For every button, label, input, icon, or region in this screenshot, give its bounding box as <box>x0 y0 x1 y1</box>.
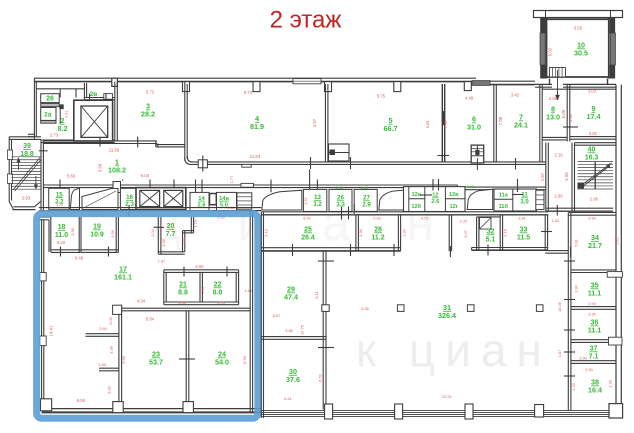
svg-text:4.23: 4.23 <box>571 383 576 391</box>
svg-text:8.67: 8.67 <box>273 313 281 318</box>
svg-text:1.77: 1.77 <box>229 176 234 184</box>
svg-text:3.90: 3.90 <box>588 301 596 306</box>
svg-text:2 этаж: 2 этаж <box>270 7 342 34</box>
svg-text:2.9: 2.9 <box>362 202 371 209</box>
svg-text:8.2: 8.2 <box>58 126 68 133</box>
svg-text:3.80: 3.80 <box>106 385 111 393</box>
svg-text:5.88: 5.88 <box>285 328 293 333</box>
svg-text:3.90: 3.90 <box>588 216 596 221</box>
svg-text:11.83: 11.83 <box>250 154 261 159</box>
svg-text:10.9: 10.9 <box>90 231 104 238</box>
svg-text:6.89: 6.89 <box>425 121 430 129</box>
svg-text:3.20: 3.20 <box>57 240 66 245</box>
svg-text:2.02: 2.02 <box>201 286 205 293</box>
svg-text:2.93: 2.93 <box>22 195 31 200</box>
svg-text:3.90: 3.90 <box>588 312 596 317</box>
svg-text:1.66: 1.66 <box>98 362 106 367</box>
svg-text:5.66: 5.66 <box>67 173 76 178</box>
svg-text:3.81: 3.81 <box>518 215 526 220</box>
svg-text:3.81: 3.81 <box>589 131 598 136</box>
svg-text:11.5: 11.5 <box>517 234 530 241</box>
svg-text:3.58: 3.58 <box>70 228 75 236</box>
svg-text:53.7: 53.7 <box>149 358 163 367</box>
svg-text:2.80: 2.80 <box>590 197 599 202</box>
svg-text:3.42: 3.42 <box>511 93 520 98</box>
svg-text:12г: 12г <box>450 204 459 210</box>
svg-text:5.81: 5.81 <box>574 239 579 247</box>
svg-text:3.03: 3.03 <box>178 300 186 305</box>
svg-text:2.6: 2.6 <box>431 199 440 205</box>
svg-text:81.9: 81.9 <box>250 122 264 131</box>
svg-text:3.90: 3.90 <box>585 367 593 372</box>
svg-text:1.52: 1.52 <box>304 197 308 204</box>
svg-text:3.2: 3.2 <box>313 201 322 208</box>
svg-text:4.48: 4.48 <box>465 96 474 101</box>
svg-text:3.90: 3.90 <box>579 356 587 361</box>
svg-text:2.90: 2.90 <box>574 284 579 292</box>
svg-text:1.70: 1.70 <box>56 203 63 207</box>
svg-text:3.3: 3.3 <box>336 202 345 209</box>
svg-text:4.34: 4.34 <box>137 299 146 304</box>
svg-text:9.58: 9.58 <box>121 356 126 364</box>
svg-text:5.55: 5.55 <box>564 172 569 181</box>
svg-text:4.03: 4.03 <box>466 184 475 189</box>
svg-text:21.7: 21.7 <box>588 241 602 250</box>
svg-text:1.82: 1.82 <box>181 237 186 245</box>
svg-text:11.0: 11.0 <box>55 232 68 239</box>
svg-text:5.42: 5.42 <box>615 237 620 245</box>
svg-text:13.0: 13.0 <box>546 113 560 122</box>
svg-text:5.36: 5.36 <box>361 306 369 311</box>
svg-text:11а: 11а <box>499 192 509 198</box>
svg-text:18.09: 18.09 <box>557 302 562 312</box>
svg-text:8.11: 8.11 <box>314 291 319 298</box>
svg-text:4.92: 4.92 <box>568 113 573 122</box>
svg-text:108.2: 108.2 <box>108 166 126 175</box>
svg-text:3.04: 3.04 <box>150 228 155 236</box>
svg-text:7.1: 7.1 <box>589 353 599 360</box>
svg-text:5.02: 5.02 <box>548 47 553 56</box>
svg-text:26: 26 <box>46 96 54 103</box>
svg-text:3.38: 3.38 <box>109 346 114 354</box>
svg-text:8.0: 8.0 <box>213 289 223 296</box>
svg-text:12б: 12б <box>411 203 421 210</box>
svg-text:7.00: 7.00 <box>443 120 448 128</box>
svg-text:1.43: 1.43 <box>361 185 370 190</box>
svg-text:1.62: 1.62 <box>552 218 560 223</box>
svg-text:2.19: 2.19 <box>554 153 563 158</box>
svg-text:3.58: 3.58 <box>110 230 115 238</box>
svg-text:5.61: 5.61 <box>284 396 292 401</box>
svg-text:5.72: 5.72 <box>146 90 155 95</box>
svg-text:3.98: 3.98 <box>98 163 103 172</box>
svg-text:37.6: 37.6 <box>286 375 300 384</box>
svg-text:20.51: 20.51 <box>442 394 452 399</box>
svg-text:5.1: 5.1 <box>486 236 496 243</box>
svg-text:2.73: 2.73 <box>50 133 59 138</box>
svg-text:28.2: 28.2 <box>141 110 155 119</box>
svg-text:31.0: 31.0 <box>467 123 481 132</box>
svg-text:8.42: 8.42 <box>303 215 311 220</box>
svg-text:3.38: 3.38 <box>358 229 363 237</box>
svg-text:8.58: 8.58 <box>242 356 247 364</box>
svg-text:2.60: 2.60 <box>99 326 107 331</box>
svg-text:2.00: 2.00 <box>108 316 113 324</box>
svg-text:9.75: 9.75 <box>377 94 386 99</box>
svg-text:2.20: 2.20 <box>460 218 468 223</box>
svg-text:14.75: 14.75 <box>300 325 305 335</box>
svg-text:5.06: 5.06 <box>561 109 566 118</box>
svg-text:2.93: 2.93 <box>373 215 381 220</box>
svg-text:5.84: 5.84 <box>146 317 155 322</box>
svg-text:16.3: 16.3 <box>585 154 599 161</box>
svg-text:6.48: 6.48 <box>75 256 84 261</box>
svg-text:11.58: 11.58 <box>109 148 120 153</box>
svg-text:17.4: 17.4 <box>587 112 601 121</box>
svg-text:11б: 11б <box>499 203 509 210</box>
svg-text:3.19: 3.19 <box>503 229 508 237</box>
svg-text:1.38: 1.38 <box>608 380 613 388</box>
svg-text:12в: 12в <box>449 192 459 198</box>
svg-text:6.04: 6.04 <box>141 173 150 178</box>
svg-text:к циан: к циан <box>356 324 552 376</box>
svg-text:4.97: 4.97 <box>312 118 317 127</box>
svg-text:2.88: 2.88 <box>549 96 558 101</box>
svg-text:4.91: 4.91 <box>64 111 69 119</box>
svg-text:2в: 2в <box>90 91 98 98</box>
svg-text:5.50: 5.50 <box>574 26 583 31</box>
svg-text:161.1: 161.1 <box>114 273 132 282</box>
svg-text:1.87: 1.87 <box>557 350 562 358</box>
svg-text:30.5: 30.5 <box>574 49 588 58</box>
svg-text:4.25: 4.25 <box>421 216 429 221</box>
svg-text:11.1: 11.1 <box>588 289 602 298</box>
svg-text:3.07: 3.07 <box>463 230 468 238</box>
svg-text:7.7: 7.7 <box>166 231 176 238</box>
svg-text:47.4: 47.4 <box>284 293 298 302</box>
svg-text:26.4: 26.4 <box>301 234 315 241</box>
svg-text:24.1: 24.1 <box>514 121 528 130</box>
svg-text:2а: 2а <box>44 112 52 119</box>
svg-text:1.43: 1.43 <box>336 185 345 190</box>
svg-text:18.8: 18.8 <box>20 151 34 158</box>
svg-text:326.4: 326.4 <box>438 311 456 320</box>
svg-text:7.08: 7.08 <box>498 116 503 125</box>
svg-text:2.06: 2.06 <box>554 194 563 199</box>
svg-text:3.58: 3.58 <box>161 239 166 247</box>
svg-text:11.1: 11.1 <box>588 326 602 335</box>
svg-text:3.03: 3.03 <box>588 89 597 94</box>
svg-text:16.4: 16.4 <box>588 386 602 395</box>
svg-text:2.3: 2.3 <box>125 201 134 208</box>
svg-text:3.30: 3.30 <box>401 228 406 236</box>
svg-text:54.0: 54.0 <box>215 358 229 367</box>
svg-text:1.87: 1.87 <box>540 172 545 181</box>
svg-text:1.79: 1.79 <box>193 220 198 228</box>
svg-text:3.13: 3.13 <box>263 229 268 237</box>
svg-text:1.87: 1.87 <box>158 259 166 264</box>
svg-text:6.55: 6.55 <box>77 398 86 403</box>
svg-text:11.2: 11.2 <box>371 234 384 241</box>
svg-text:3.0: 3.0 <box>520 199 529 205</box>
svg-text:14.41: 14.41 <box>49 325 54 336</box>
svg-text:6.60: 6.60 <box>195 264 204 269</box>
svg-text:8.8: 8.8 <box>178 289 188 296</box>
svg-text:2.76: 2.76 <box>217 300 225 305</box>
svg-text:9.73: 9.73 <box>244 90 253 95</box>
svg-text:6.53: 6.53 <box>318 374 323 382</box>
svg-text:66.7: 66.7 <box>384 124 398 133</box>
